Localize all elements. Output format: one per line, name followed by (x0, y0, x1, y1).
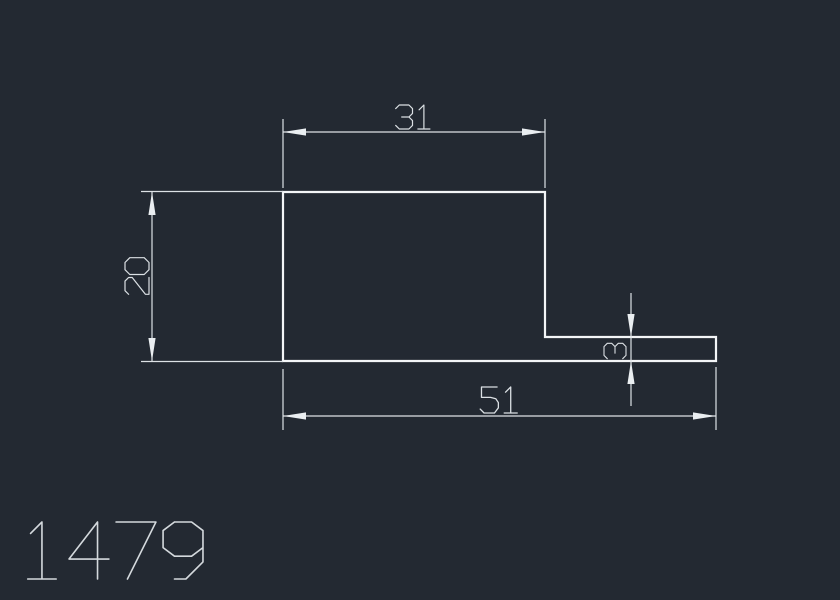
drawing-background (0, 0, 840, 600)
cad-drawing (0, 0, 840, 600)
cad-viewport (0, 0, 840, 600)
